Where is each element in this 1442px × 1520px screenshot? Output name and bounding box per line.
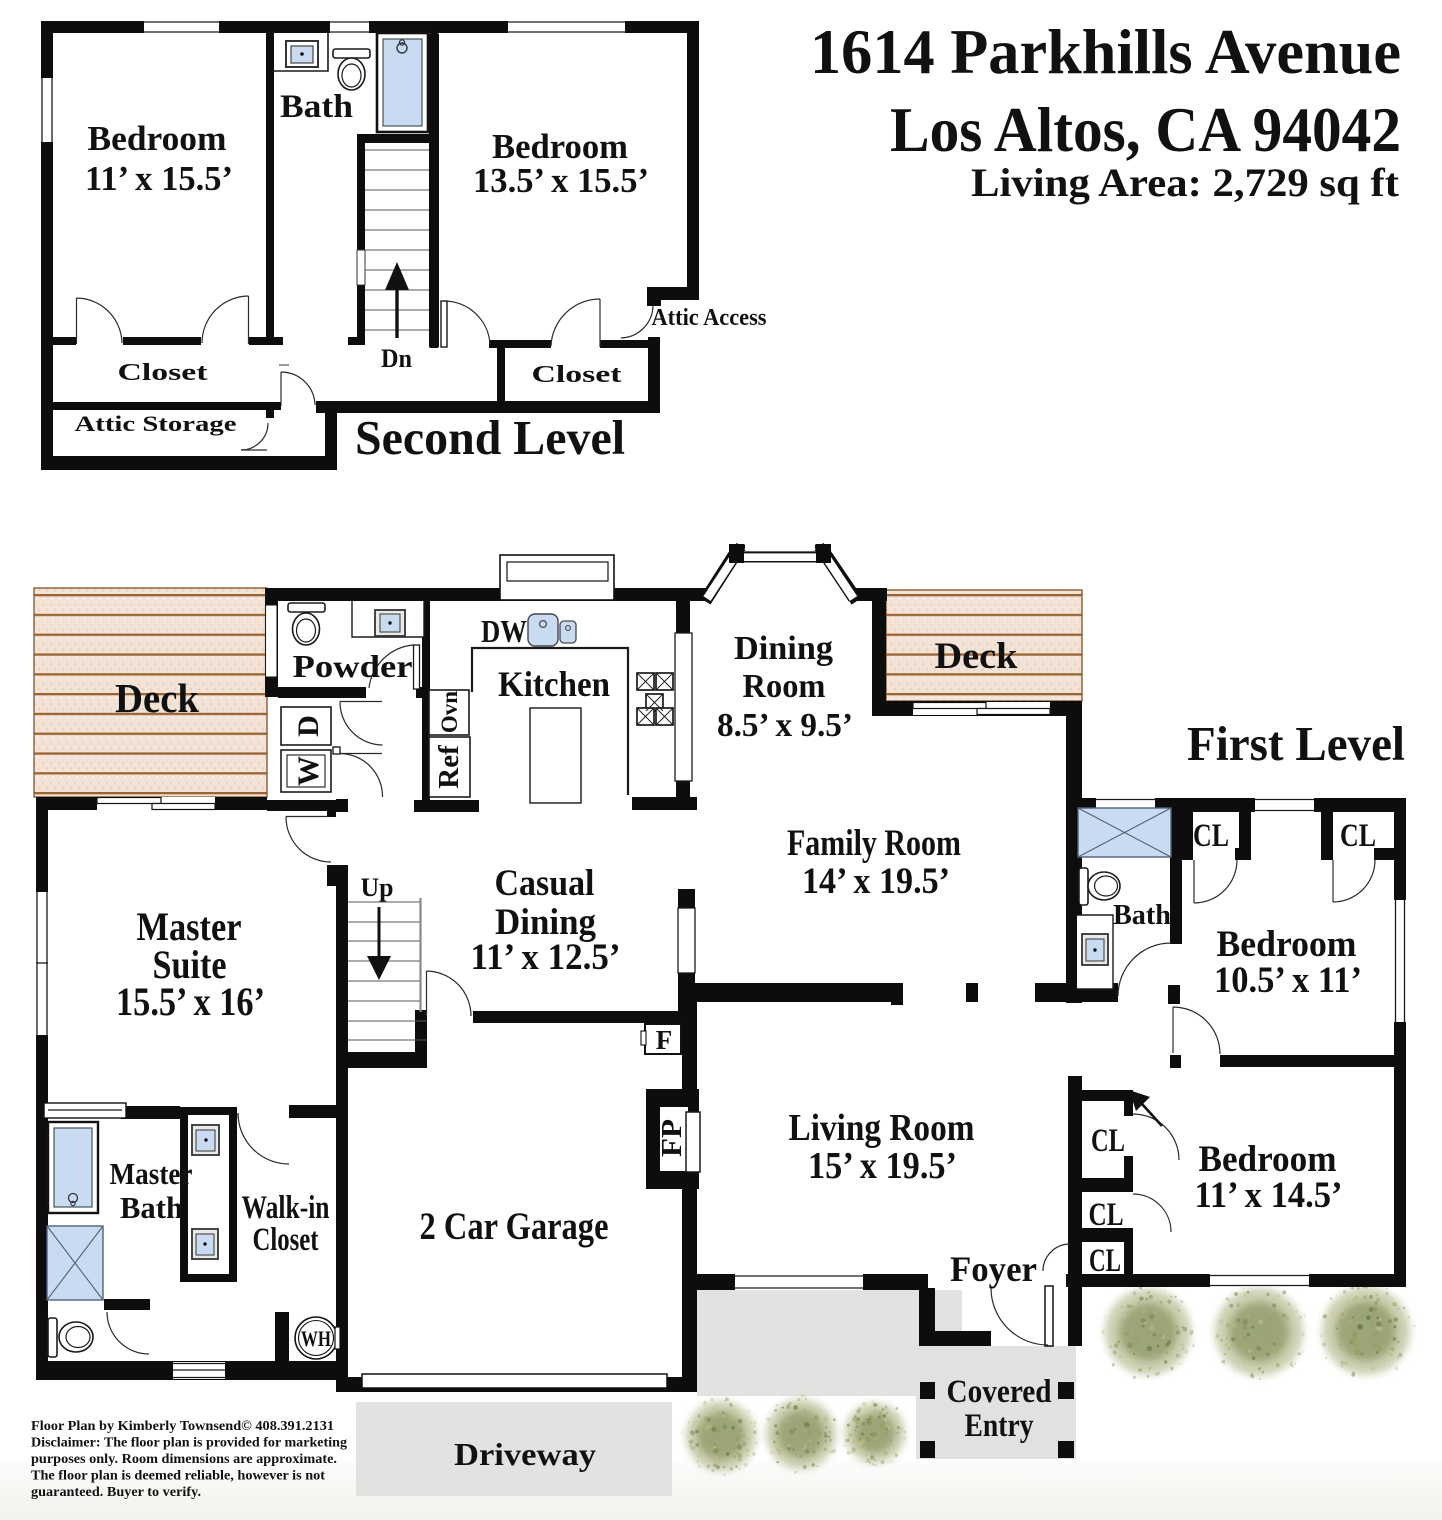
svg-text:Master: Master bbox=[110, 1156, 193, 1191]
svg-text:Room: Room bbox=[743, 668, 826, 705]
svg-text:2 Car Garage: 2 Car Garage bbox=[420, 1205, 609, 1248]
svg-text:First Level: First Level bbox=[1187, 716, 1405, 771]
svg-text:F: F bbox=[656, 1025, 673, 1055]
svg-text:15’ x 19.5’: 15’ x 19.5’ bbox=[808, 1145, 957, 1187]
svg-text:CL: CL bbox=[1193, 818, 1229, 854]
svg-text:DW: DW bbox=[481, 613, 527, 649]
svg-text:CL: CL bbox=[1340, 818, 1376, 854]
svg-text:Second Level: Second Level bbox=[355, 410, 625, 465]
svg-text:Living Room: Living Room bbox=[789, 1107, 975, 1149]
svg-text:Ref: Ref bbox=[433, 745, 465, 789]
svg-text:8.5’ x 9.5’: 8.5’ x 9.5’ bbox=[717, 707, 853, 744]
svg-text:The floor plan is deemed relia: The floor plan is deemed reliable, howev… bbox=[31, 1468, 326, 1483]
svg-text:11’ x 15.5’: 11’ x 15.5’ bbox=[85, 159, 233, 198]
svg-text:Dining: Dining bbox=[734, 630, 833, 667]
svg-text:Casual: Casual bbox=[495, 863, 595, 904]
svg-text:Deck: Deck bbox=[115, 675, 199, 721]
svg-text:FP: FP bbox=[656, 1119, 688, 1157]
svg-text:15.5’ x 16’: 15.5’ x 16’ bbox=[116, 979, 265, 1024]
svg-text:Walk-in: Walk-in bbox=[242, 1190, 330, 1226]
svg-text:Closet: Closet bbox=[118, 360, 208, 386]
svg-text:Foyer: Foyer bbox=[950, 1249, 1037, 1289]
svg-text:Dn: Dn bbox=[381, 344, 412, 373]
svg-text:Covered: Covered bbox=[947, 1374, 1052, 1410]
svg-text:CL: CL bbox=[1091, 1123, 1125, 1159]
svg-text:CL: CL bbox=[1089, 1197, 1124, 1233]
svg-text:Closet: Closet bbox=[532, 362, 622, 388]
svg-text:Living Area: 2,729 sq ft: Living Area: 2,729 sq ft bbox=[971, 160, 1400, 205]
svg-text:guaranteed. Buyer to verify.: guaranteed. Buyer to verify. bbox=[31, 1484, 201, 1499]
svg-text:WH: WH bbox=[301, 1326, 331, 1351]
svg-text:W: W bbox=[292, 756, 325, 786]
svg-text:Driveway: Driveway bbox=[454, 1436, 596, 1472]
svg-text:Bedroom: Bedroom bbox=[88, 119, 227, 158]
svg-text:Disclaimer: The floor plan is: Disclaimer: The floor plan is provided f… bbox=[31, 1435, 347, 1450]
svg-text:Bath: Bath bbox=[280, 89, 353, 125]
svg-text:Kitchen: Kitchen bbox=[498, 664, 610, 704]
svg-text:D: D bbox=[292, 715, 325, 737]
svg-text:Bedroom: Bedroom bbox=[1199, 1139, 1337, 1180]
svg-text:Entry: Entry bbox=[965, 1408, 1034, 1444]
svg-text:Bedroom: Bedroom bbox=[1217, 924, 1357, 965]
svg-text:Powder: Powder bbox=[293, 648, 413, 684]
svg-text:13.5’ x 15.5’: 13.5’ x 15.5’ bbox=[473, 161, 649, 200]
svg-text:Ovn: Ovn bbox=[437, 691, 462, 733]
svg-text:Family Room: Family Room bbox=[787, 823, 961, 864]
svg-text:Attic Storage: Attic Storage bbox=[75, 411, 237, 436]
svg-text:1614 Parkhills Avenue: 1614 Parkhills Avenue bbox=[810, 16, 1401, 87]
svg-text:10.5’ x 11’: 10.5’ x 11’ bbox=[1214, 960, 1362, 1001]
svg-text:14’ x 19.5’: 14’ x 19.5’ bbox=[802, 861, 950, 902]
svg-text:Closet: Closet bbox=[253, 1222, 319, 1258]
svg-text:11’ x 14.5’: 11’ x 14.5’ bbox=[1195, 1175, 1343, 1216]
svg-text:purposes only. Room dimensions: purposes only. Room dimensions are appro… bbox=[31, 1451, 337, 1466]
svg-text:Deck: Deck bbox=[935, 636, 1018, 677]
svg-text:11’ x 12.5’: 11’ x 12.5’ bbox=[471, 937, 621, 978]
svg-text:Los Altos, CA 94042: Los Altos, CA 94042 bbox=[890, 94, 1401, 165]
svg-text:Up: Up bbox=[361, 873, 394, 902]
svg-text:CL: CL bbox=[1089, 1243, 1121, 1279]
svg-text:Bath: Bath bbox=[120, 1190, 183, 1225]
svg-text:Floor Plan by Kimberly Townsen: Floor Plan by Kimberly Townsend© 408.391… bbox=[31, 1418, 334, 1433]
svg-text:Bath: Bath bbox=[1113, 899, 1171, 931]
svg-text:Attic Access: Attic Access bbox=[652, 305, 767, 331]
